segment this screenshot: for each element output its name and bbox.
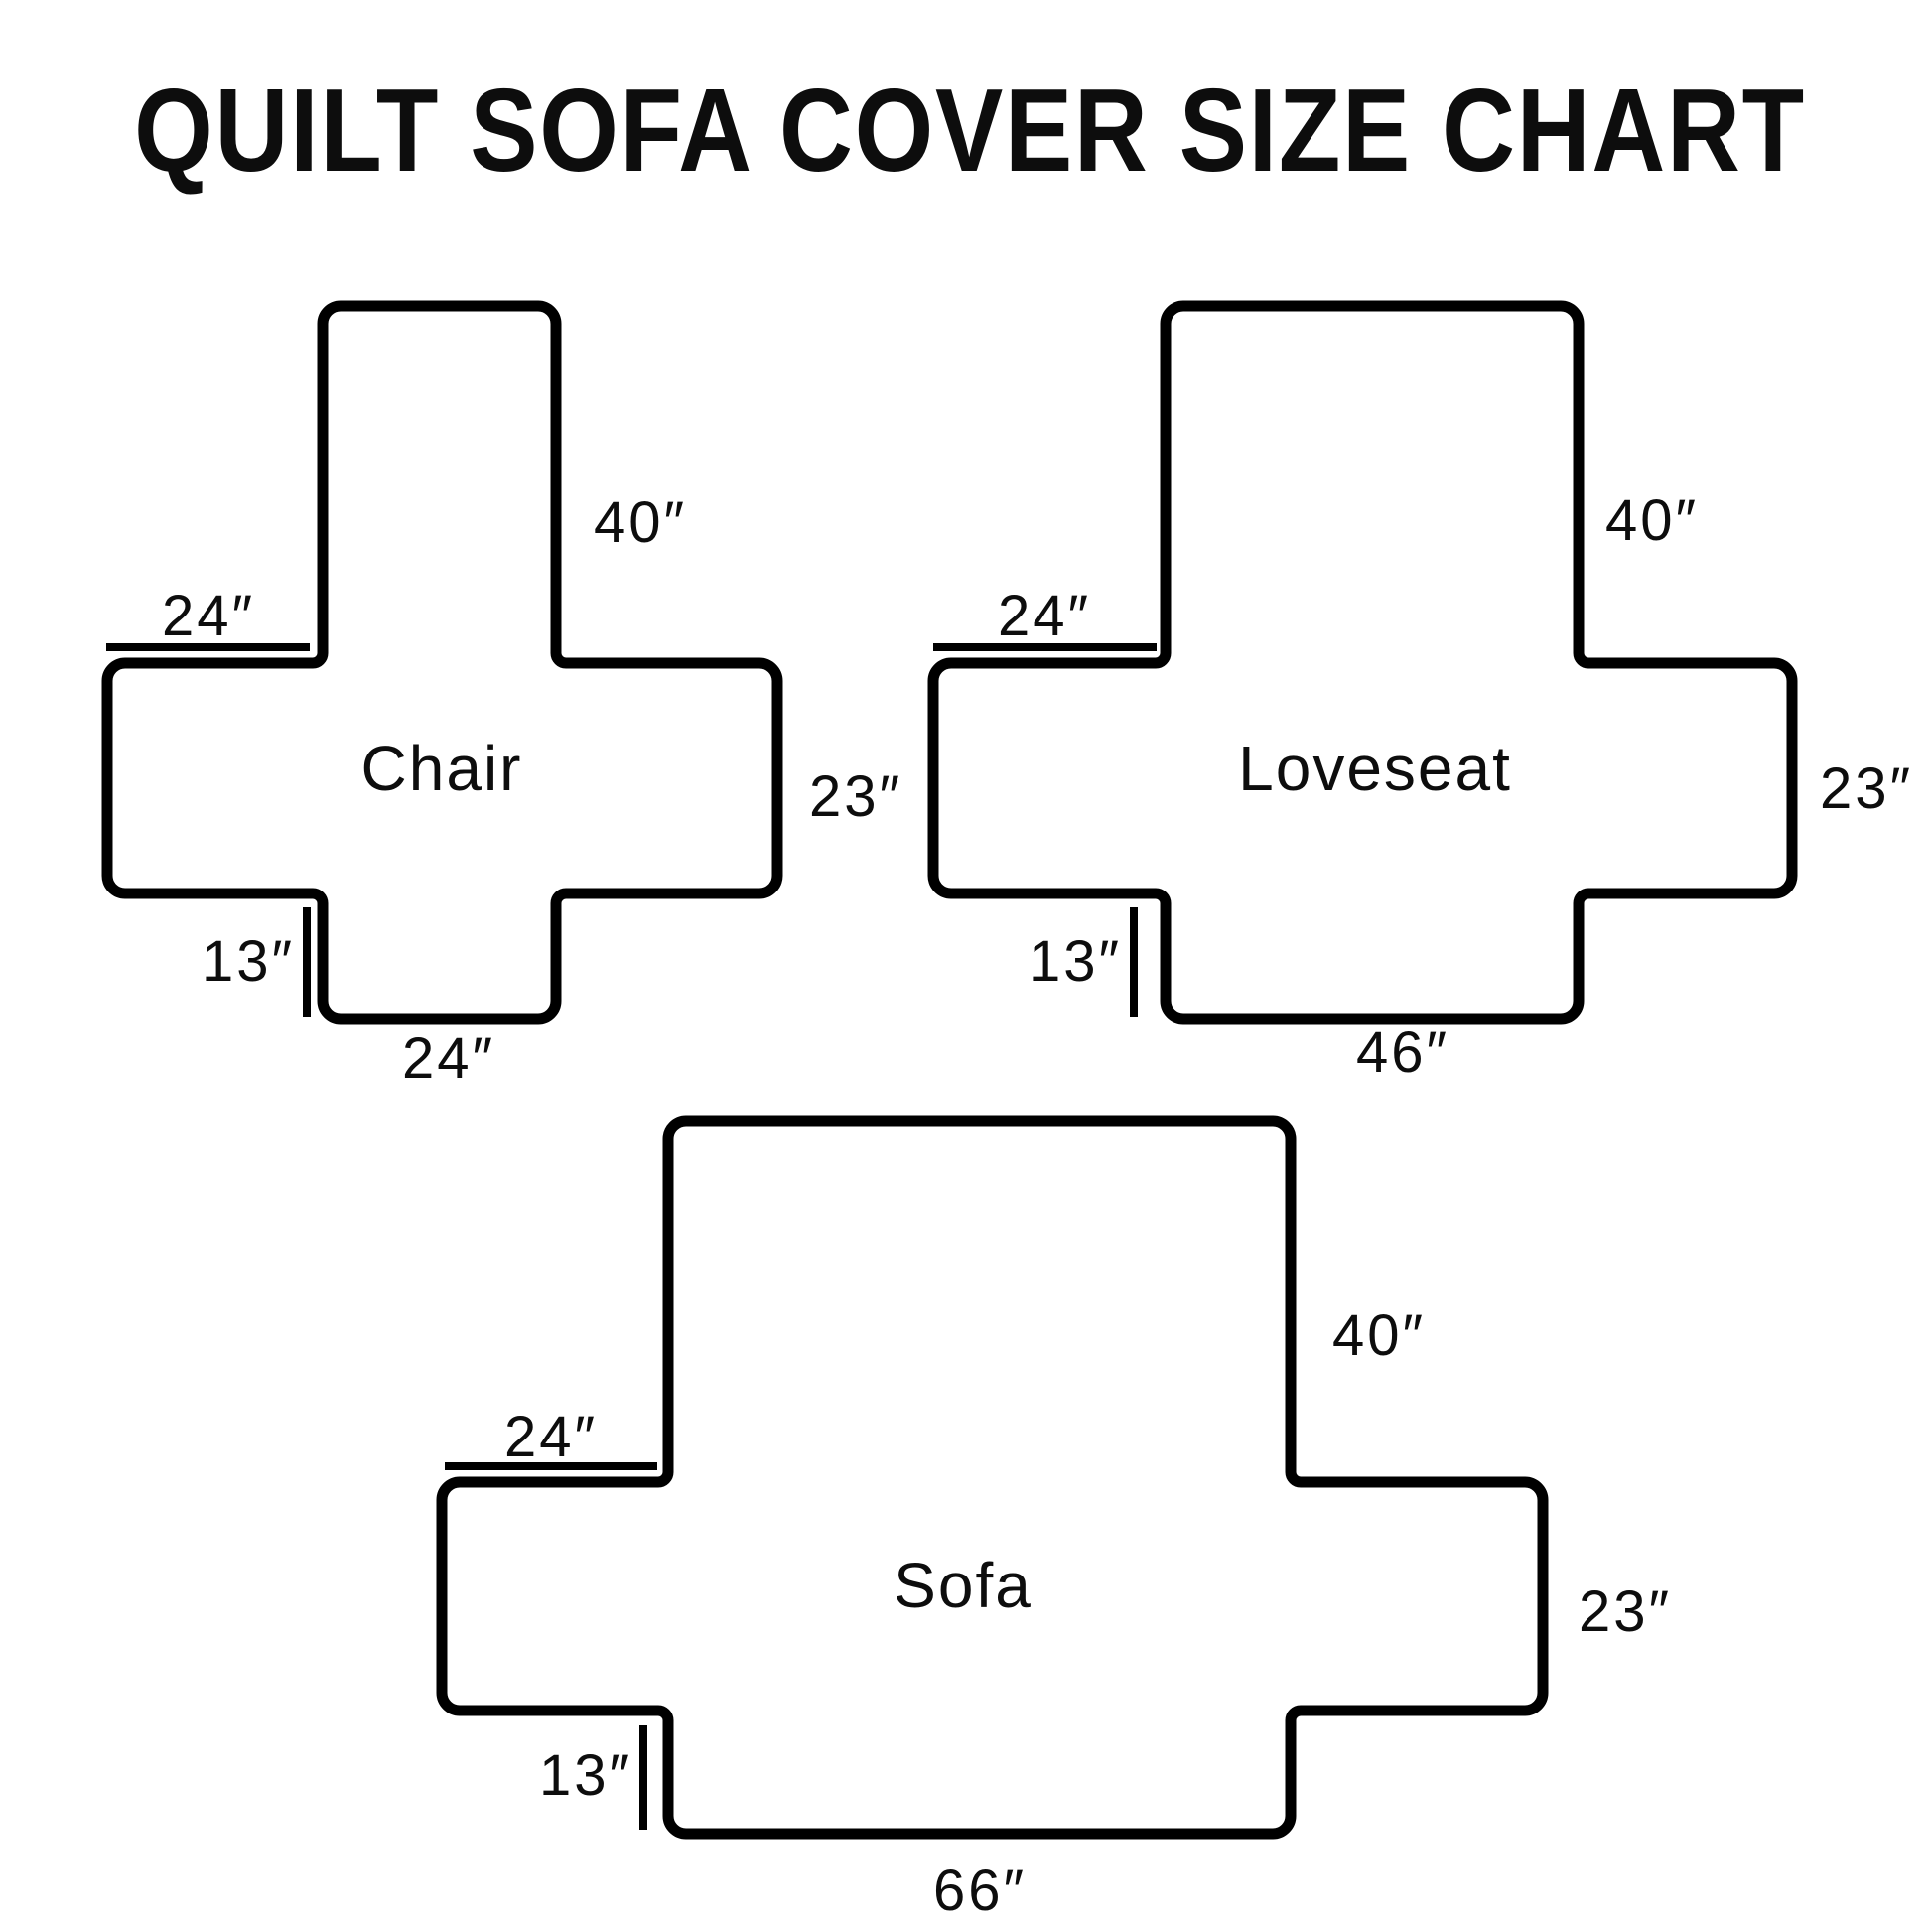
size-chart-canvas: QUILT SOFA COVER SIZE CHART 40″ 24″ Chai…	[0, 0, 1932, 1918]
loveseat-name-label: Loveseat	[1238, 733, 1512, 804]
sofa-diagram: 40″ 24″ Sofa 23″ 13″ 66″	[442, 1121, 1672, 1918]
loveseat-front-width-label: 46″	[1356, 1021, 1449, 1085]
chair-name-label: Chair	[361, 733, 523, 804]
loveseat-back-height-label: 40″	[1605, 488, 1699, 553]
loveseat-arm-depth-label: 24″	[998, 584, 1091, 648]
sofa-cover-outline	[442, 1121, 1543, 1834]
sofa-front-width-label: 66″	[933, 1858, 1027, 1918]
chair-front-tuck-label: 13″	[202, 929, 295, 994]
sofa-arm-depth-label: 24″	[504, 1405, 598, 1469]
chair-diagram: 40″ 24″ Chair 23″ 13″ 24″	[106, 306, 902, 1091]
loveseat-side-drop-label: 23″	[1820, 756, 1913, 821]
loveseat-diagram: 40″ 24″ Loveseat 23″ 13″ 46″	[933, 306, 1913, 1085]
chair-side-drop-label: 23″	[809, 764, 902, 829]
chair-back-height-label: 40″	[594, 490, 687, 555]
sofa-front-tuck-label: 13″	[539, 1743, 632, 1808]
loveseat-front-tuck-label: 13″	[1029, 929, 1122, 994]
chart-title: QUILT SOFA COVER SIZE CHART	[134, 65, 1806, 197]
sofa-name-label: Sofa	[894, 1550, 1033, 1621]
chair-cover-outline	[107, 306, 777, 1019]
sofa-side-drop-label: 23″	[1579, 1579, 1672, 1644]
size-chart-page: QUILT SOFA COVER SIZE CHART 40″ 24″ Chai…	[0, 0, 1932, 1918]
sofa-back-height-label: 40″	[1332, 1303, 1426, 1368]
chair-front-width-label: 24″	[402, 1027, 495, 1091]
loveseat-cover-outline	[933, 306, 1792, 1019]
chair-arm-depth-label: 24″	[162, 584, 255, 648]
